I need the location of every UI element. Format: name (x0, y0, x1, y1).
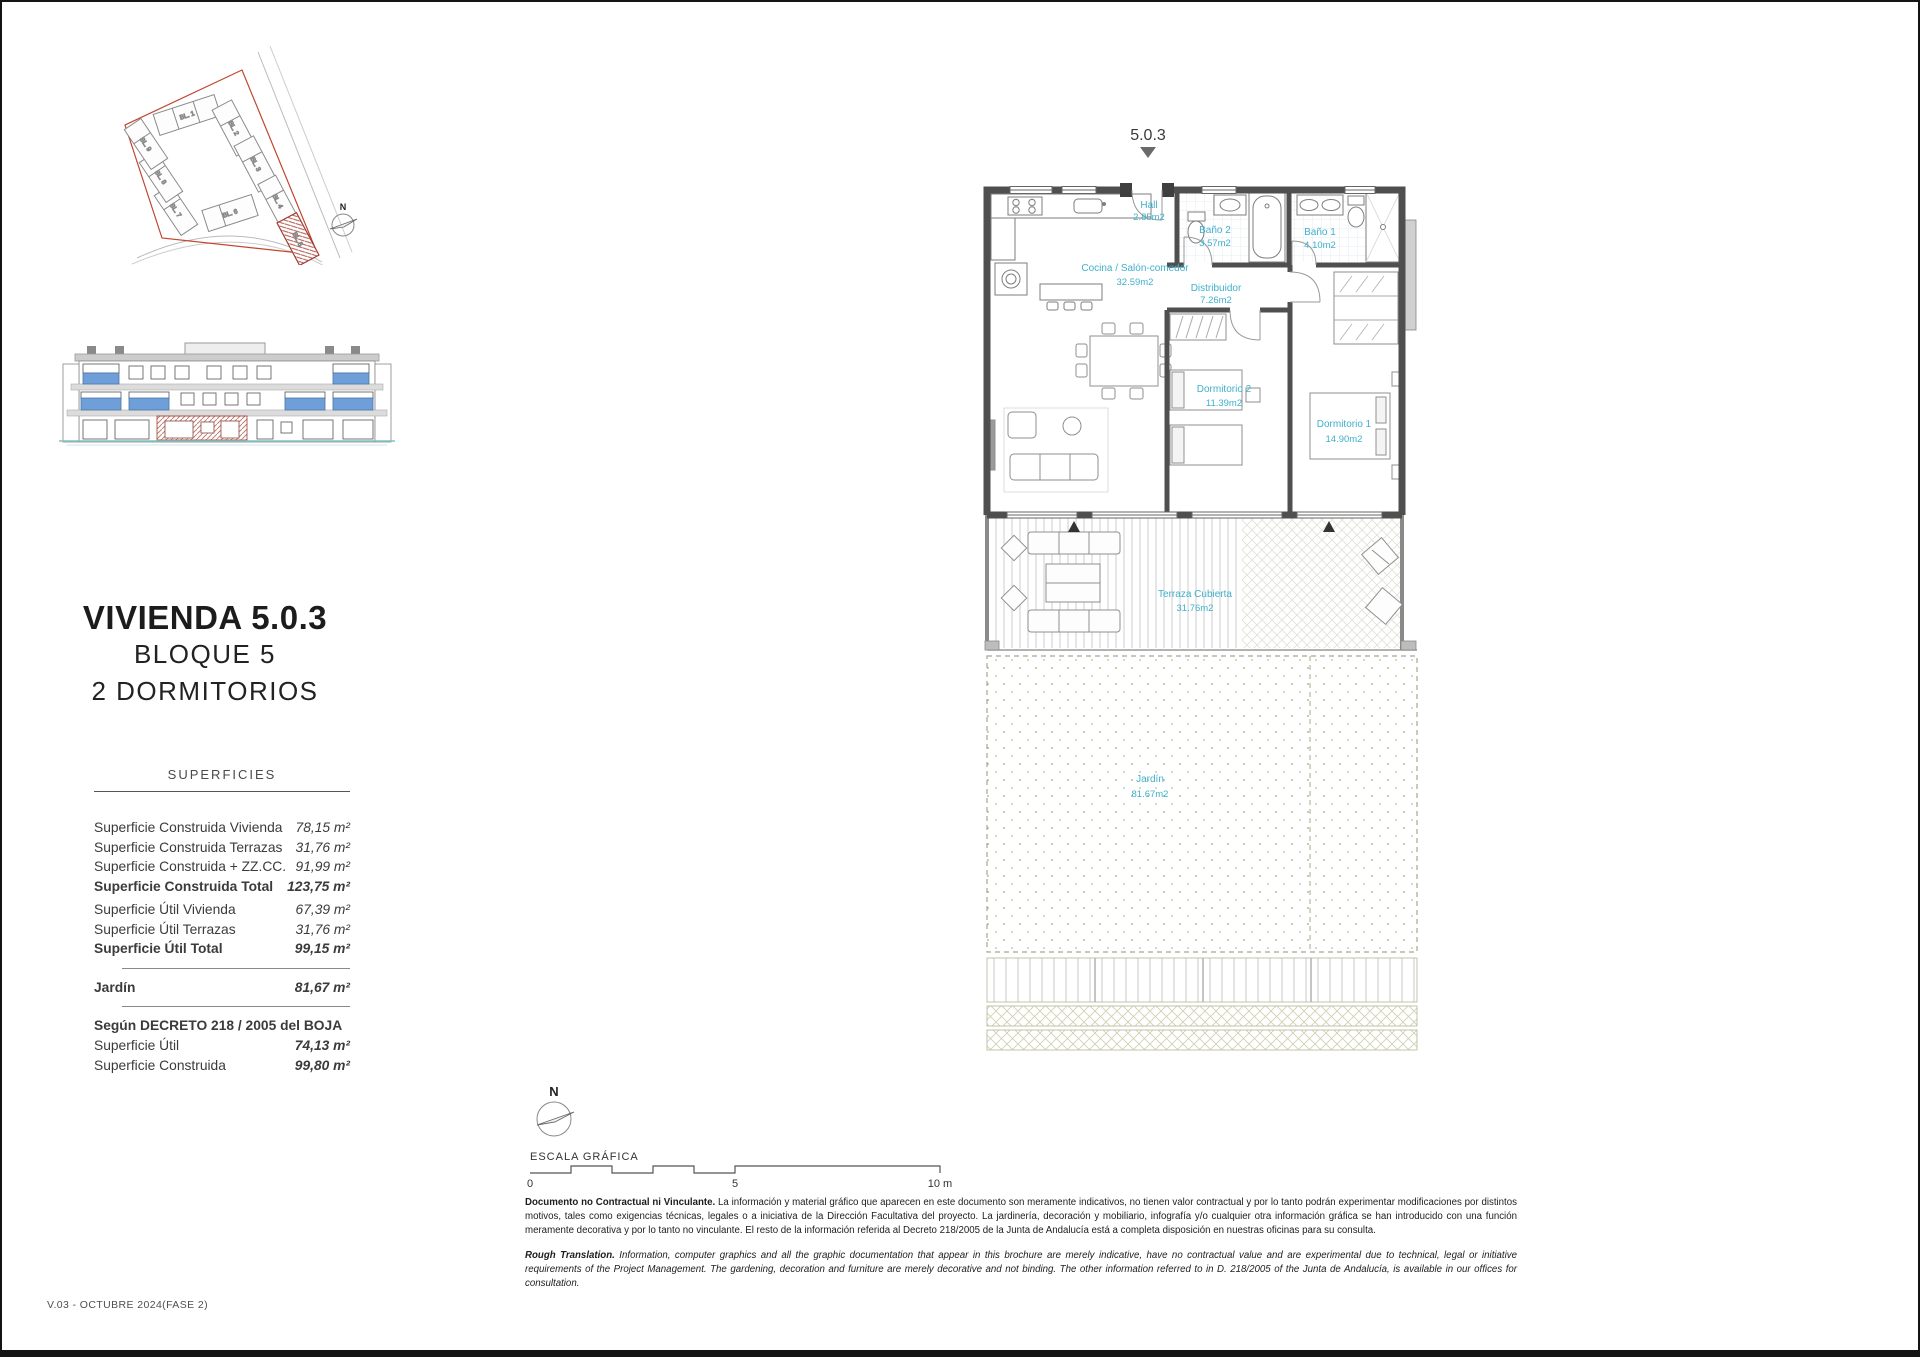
surface-row-garden: Jardín81,67 m² (94, 978, 350, 998)
scale-bar (530, 1166, 940, 1173)
surface-row: Superficie Construida + ZZ.CC.91,99 m² (94, 857, 350, 877)
surface-value: 99,15 m² (295, 939, 350, 959)
surface-label: Superficie Construida Total (94, 877, 273, 897)
surface-value: 99,80 m² (295, 1056, 350, 1076)
surface-label: Jardín (94, 978, 135, 998)
room-label-bath2: Baño 2 (1199, 225, 1231, 236)
bedrooms-subtitle: 2 DORMITORIOS (40, 673, 370, 710)
entry-pillar (1162, 183, 1174, 197)
kitchen-furniture (991, 194, 1151, 310)
unit-marker: 5.0.3 (1130, 127, 1166, 158)
terrace-zone (985, 515, 1417, 650)
room-area-garden: 81.67m2 (1132, 789, 1169, 800)
scale-tick: 0 (527, 1178, 533, 1190)
garden-paving-hatch (987, 1030, 1417, 1050)
room-area-kitchen: 32.59m2 (1117, 277, 1154, 288)
version-label: V.03 - OCTUBRE 2024(FASE 2) (47, 1299, 208, 1311)
surface-row-total: Superficie Construida Total123,75 m² (94, 877, 350, 897)
divider (122, 1006, 350, 1007)
terrace-lattice (1242, 518, 1400, 648)
surface-label: Superficie Útil Total (94, 939, 223, 959)
garden-paving-hatch (987, 1006, 1417, 1026)
entry-pillar (1120, 183, 1132, 197)
surface-label: Superficie Construida + ZZ.CC. (94, 857, 286, 877)
room-area-bedroom2: 11.39m2 (1206, 398, 1242, 409)
floor-plan: 5.0.3 (952, 120, 1472, 1070)
surface-value: 31,76 m² (296, 920, 350, 940)
disclaimer-en-lead: Rough Translation. (525, 1250, 615, 1261)
surface-row: Superficie Construida99,80 m² (94, 1056, 350, 1076)
room-label-hallway: Distribuidor (1191, 283, 1242, 294)
legal-disclaimer: Documento no Contractual ni Vinculante. … (525, 1196, 1517, 1291)
surface-value: 123,75 m² (287, 877, 350, 897)
surface-label: Superficie Construida Terrazas (94, 838, 282, 858)
surface-row: Superficie Construida Vivienda78,15 m² (94, 818, 350, 838)
surface-label: Superficie Construida Vivienda (94, 818, 282, 838)
surface-value: 74,13 m² (295, 1036, 350, 1056)
room-area-hallway: 7.26m2 (1200, 295, 1232, 306)
bedroom1-furniture (1310, 272, 1404, 479)
disclaimer-es-lead: Documento no Contractual ni Vinculante. (525, 1197, 715, 1208)
room-label-bedroom1: Dormitorio 1 (1317, 419, 1372, 430)
room-label-kitchen: Cocina / Salón-comedor (1081, 263, 1189, 274)
block-subtitle: BLOQUE 5 (40, 636, 370, 673)
room-area-bedroom1: 14.90m2 (1326, 434, 1363, 445)
room-label-terrace: Terraza Cubierta (1158, 589, 1232, 600)
room-label-garden: Jardín (1136, 774, 1164, 785)
decreto-header: Según DECRETO 218 / 2005 del BOJA (94, 1016, 350, 1036)
north-label: N (549, 1084, 558, 1099)
room-label-bath1: Baño 1 (1304, 227, 1336, 238)
surface-label: Superficie Útil Vivienda (94, 900, 236, 920)
north-label: N (340, 202, 347, 212)
garden-zone (987, 656, 1417, 1050)
surface-row-total: Superficie Útil Total99,15 m² (94, 939, 350, 959)
room-area-bath1: 4.10m2 (1304, 240, 1336, 251)
surfaces-table: SUPERFICIES Superficie Construida Vivien… (94, 767, 350, 1075)
living-furniture (990, 323, 1171, 492)
building-elevation (57, 334, 397, 462)
site-block-5-highlighted: BL. 5 (277, 213, 319, 265)
brochure-page: BL. 1 BL. 2 BL. 3 BL. 4 BL. 5 BL. 6 (0, 0, 1920, 1357)
site-block-1: BL. 1 (153, 95, 221, 136)
room-area-terrace: 31.76m2 (1177, 603, 1214, 614)
unit-title: VIVIENDA 5.0.3 (40, 600, 370, 636)
scale-north-compass-icon: N (537, 1084, 574, 1136)
room-area-hall: 2.85m2 (1133, 212, 1165, 223)
room-label-hall: Hall (1140, 200, 1157, 211)
surface-value: 81,67 m² (295, 978, 350, 998)
graphic-scale: N ESCALA GRÁFICA 0 5 10 m (522, 1080, 982, 1195)
surface-row: Superficie Construida Terrazas31,76 m² (94, 838, 350, 858)
scale-tick: 5 (732, 1178, 738, 1190)
surface-value: 91,99 m² (296, 857, 350, 877)
service-shaft (1404, 220, 1416, 330)
entry-arrow-icon (1140, 147, 1156, 158)
surface-label: Superficie Construida (94, 1056, 226, 1076)
surface-label: Superficie Útil Terrazas (94, 920, 236, 940)
scale-title: ESCALA GRÁFICA (530, 1150, 639, 1163)
surface-label: Superficie Útil (94, 1036, 179, 1056)
surface-row: Superficie Útil Vivienda67,39 m² (94, 900, 350, 920)
disclaimer-es: Documento no Contractual ni Vinculante. … (525, 1196, 1517, 1237)
disclaimer-en: Rough Translation. Information, computer… (525, 1249, 1517, 1290)
elevation-ground-floor (83, 416, 373, 440)
site-plan: BL. 1 BL. 2 BL. 3 BL. 4 BL. 5 BL. 6 (82, 40, 382, 265)
surfaces-header: SUPERFICIES (94, 767, 350, 792)
title-block: VIVIENDA 5.0.3 BLOQUE 5 2 DORMITORIOS (40, 600, 370, 710)
room-area-bath2: 3.57m2 (1199, 238, 1231, 249)
garden-paving-planks (987, 958, 1417, 1002)
room-label-bedroom2: Dormitorio 2 (1197, 384, 1252, 395)
surface-value: 78,15 m² (296, 818, 350, 838)
surface-value: 67,39 m² (296, 900, 350, 920)
surface-value: 31,76 m² (296, 838, 350, 858)
divider (122, 968, 350, 969)
disclaimer-en-body: Information, computer graphics and all t… (525, 1250, 1517, 1289)
unit-marker-label: 5.0.3 (1130, 127, 1166, 144)
surface-row: Superficie Útil Terrazas31,76 m² (94, 920, 350, 940)
surface-row: Superficie Útil74,13 m² (94, 1036, 350, 1056)
site-block-6: BL. 6 (202, 195, 258, 232)
scale-tick: 10 m (928, 1178, 952, 1190)
